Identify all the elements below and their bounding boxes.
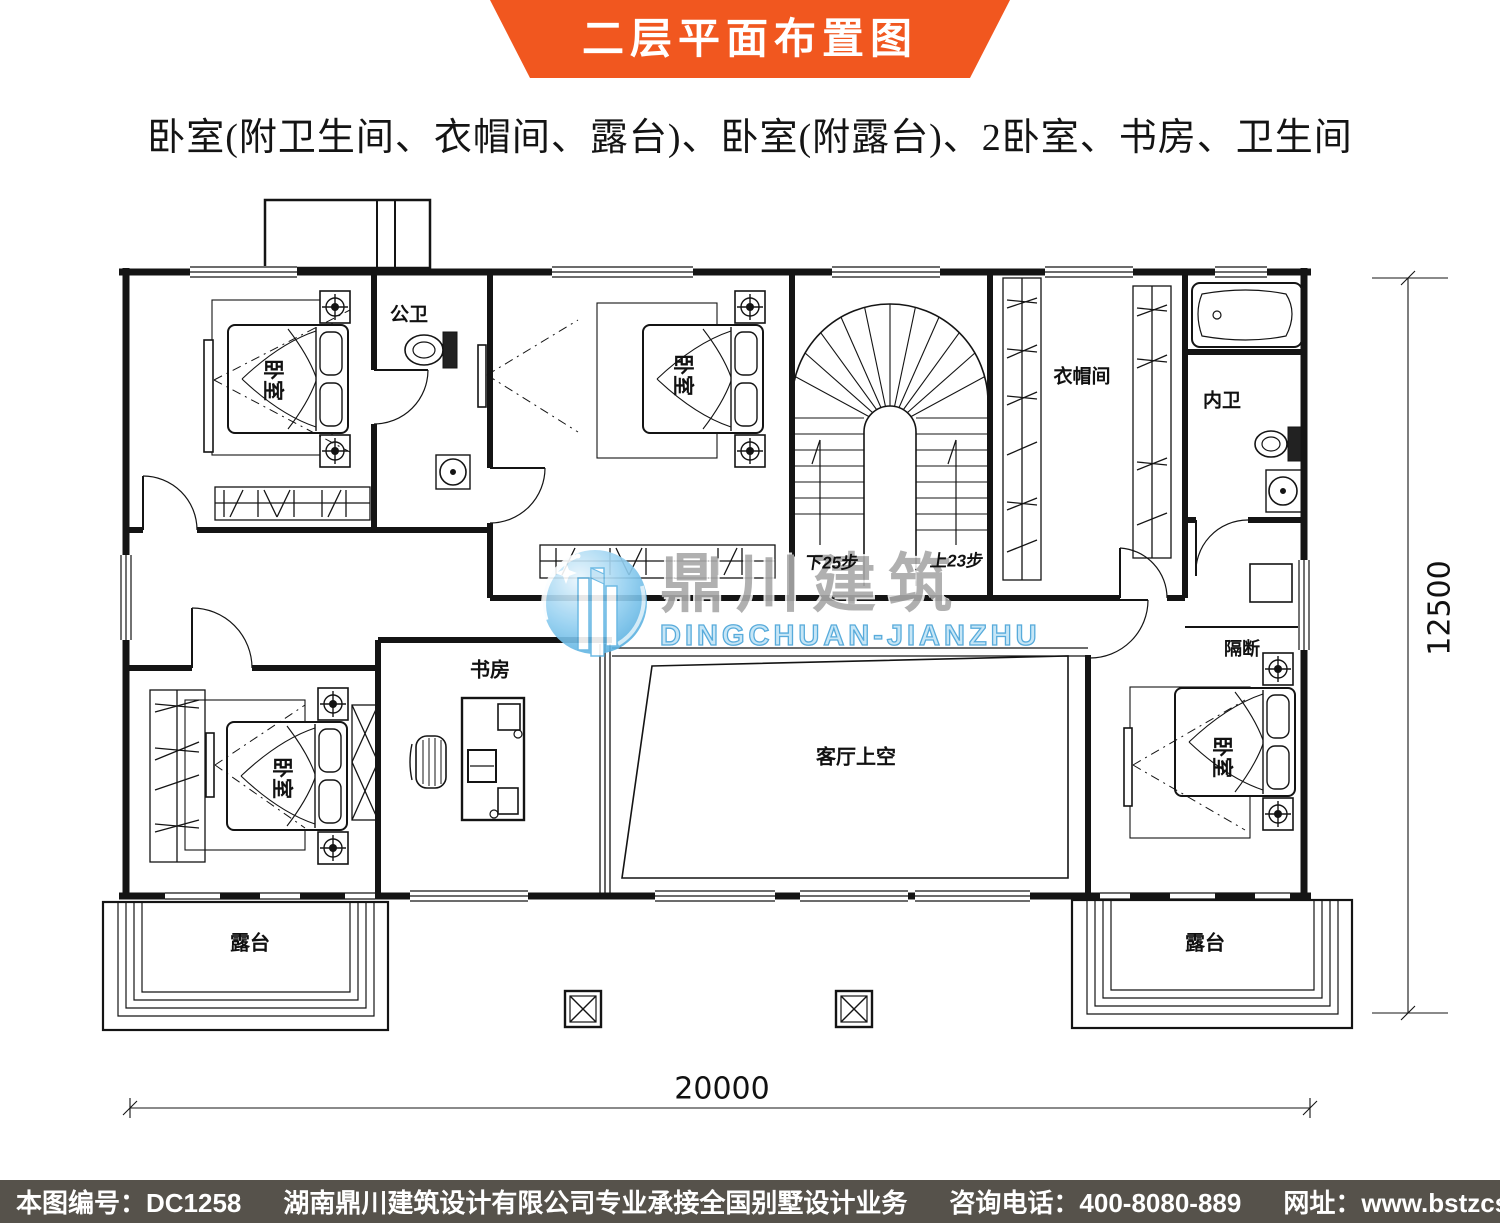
terrace-right (1072, 900, 1352, 1028)
label-bedroom-top-left: 卧室 (259, 359, 289, 401)
label-inner-bath: 内卫 (1203, 386, 1241, 413)
label-bedroom-top-mid: 卧室 (669, 354, 699, 396)
public-bath-fixtures (405, 332, 470, 489)
bathtub-icon (1192, 283, 1302, 347)
roof-bumpout (265, 200, 430, 268)
terrace-left (103, 902, 388, 1030)
sink-icon (436, 455, 470, 489)
label-study: 书房 (470, 654, 510, 683)
floor-plan-drawing (0, 0, 1500, 1223)
label-terrace-left: 露台 (230, 927, 270, 956)
label-bedroom-bottom-right: 卧室 (1208, 736, 1238, 778)
label-terrace-right: 露台 (1185, 927, 1225, 956)
sink-icon (1266, 470, 1302, 512)
office-chair-icon (410, 736, 446, 788)
niche-box (1250, 564, 1292, 602)
label-stairs-up: 上23步 (929, 547, 985, 572)
company-name: 湖南鼎川建筑设计有限公司专业承接全国别墅设计业务 (283, 1183, 907, 1220)
footer-bar: 本图编号：DC1258 湖南鼎川建筑设计有限公司专业承接全国别墅设计业务 咨询电… (0, 1180, 1500, 1223)
dimension-width-label: 20000 (674, 1072, 769, 1107)
dimension-height-label: 12500 (1423, 560, 1458, 655)
toilet-icon (1255, 427, 1301, 461)
phone: 咨询电话：400-8080-889 (949, 1183, 1241, 1220)
label-partition: 隔断 (1224, 635, 1260, 661)
label-public-bath: 公卫 (390, 300, 428, 327)
label-living-void: 客厅上空 (816, 741, 896, 770)
website: 网址：www.bstzcs.com (1283, 1183, 1500, 1220)
column-right (836, 991, 872, 1027)
column-left (565, 991, 601, 1027)
label-bedroom-bottom-left: 卧室 (268, 757, 298, 799)
label-stairs-down: 下25步 (804, 549, 860, 574)
toilet-icon (405, 332, 457, 368)
bed-top-mid (643, 325, 763, 433)
drawing-number: 本图编号：DC1258 (16, 1183, 241, 1220)
stairs (792, 304, 988, 586)
page: 鼎川建筑 DINGCHUAN-JIANZHU 卧室 公卫 卧室 衣帽间 内卫 卧… (0, 0, 1500, 1223)
study-furniture (410, 698, 524, 820)
label-cloakroom: 衣帽间 (1053, 362, 1110, 389)
